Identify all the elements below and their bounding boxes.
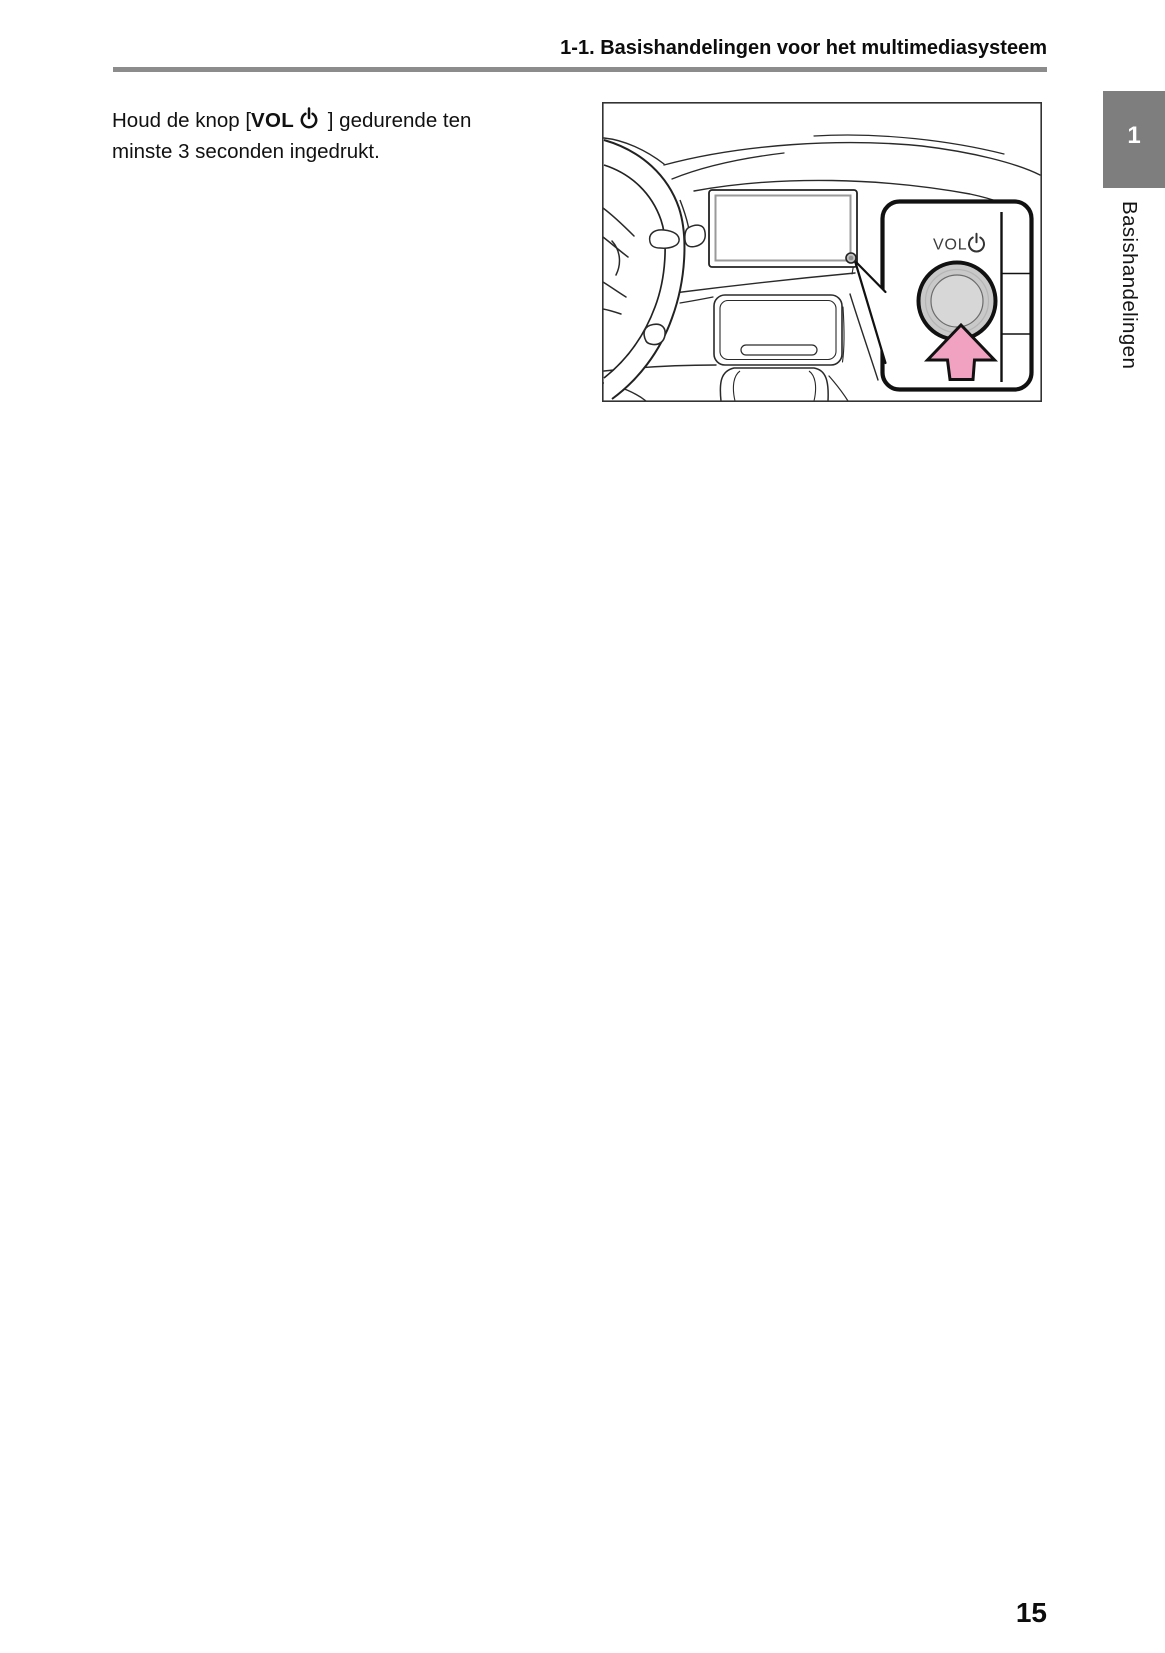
instruction-line-2: minste 3 seconden ingedrukt. xyxy=(112,136,602,167)
storage-tray xyxy=(714,295,842,365)
control-stalk xyxy=(685,225,705,247)
power-knob-small xyxy=(846,253,856,263)
callout-knob-label: VOL xyxy=(933,237,967,254)
seat-headrest xyxy=(720,368,828,401)
power-icon xyxy=(298,107,320,131)
manual-page: 1-1. Basishandelingen voor het multimedi… xyxy=(0,0,1165,1653)
vol-button-label: VOL xyxy=(251,109,294,132)
instruction-line1-prefix: Houd de knop [ xyxy=(112,109,251,132)
section-header: 1-1. Basishandelingen voor het multimedi… xyxy=(560,37,1047,60)
header-rule xyxy=(113,67,1047,72)
page-number: 15 xyxy=(1016,1597,1047,1629)
multimedia-screen xyxy=(709,190,857,267)
steering-wheel xyxy=(604,140,705,399)
dashboard-figure: VOL xyxy=(602,102,1042,402)
instruction-text: Houd de knop [VOL ] gedurende ten minste… xyxy=(112,105,602,167)
chapter-tab: 1 xyxy=(1103,91,1165,188)
dashboard-illustration: VOL xyxy=(602,102,1042,402)
instruction-line-1: Houd de knop [VOL ] gedurende ten xyxy=(112,105,602,136)
chapter-title-vertical: Basishandelingen xyxy=(1117,201,1141,369)
instruction-line1-suffix: ] gedurende ten xyxy=(322,109,471,132)
wheel-hub-nub xyxy=(644,324,665,344)
chapter-number: 1 xyxy=(1127,122,1140,150)
rim-grip-pod xyxy=(650,230,679,248)
